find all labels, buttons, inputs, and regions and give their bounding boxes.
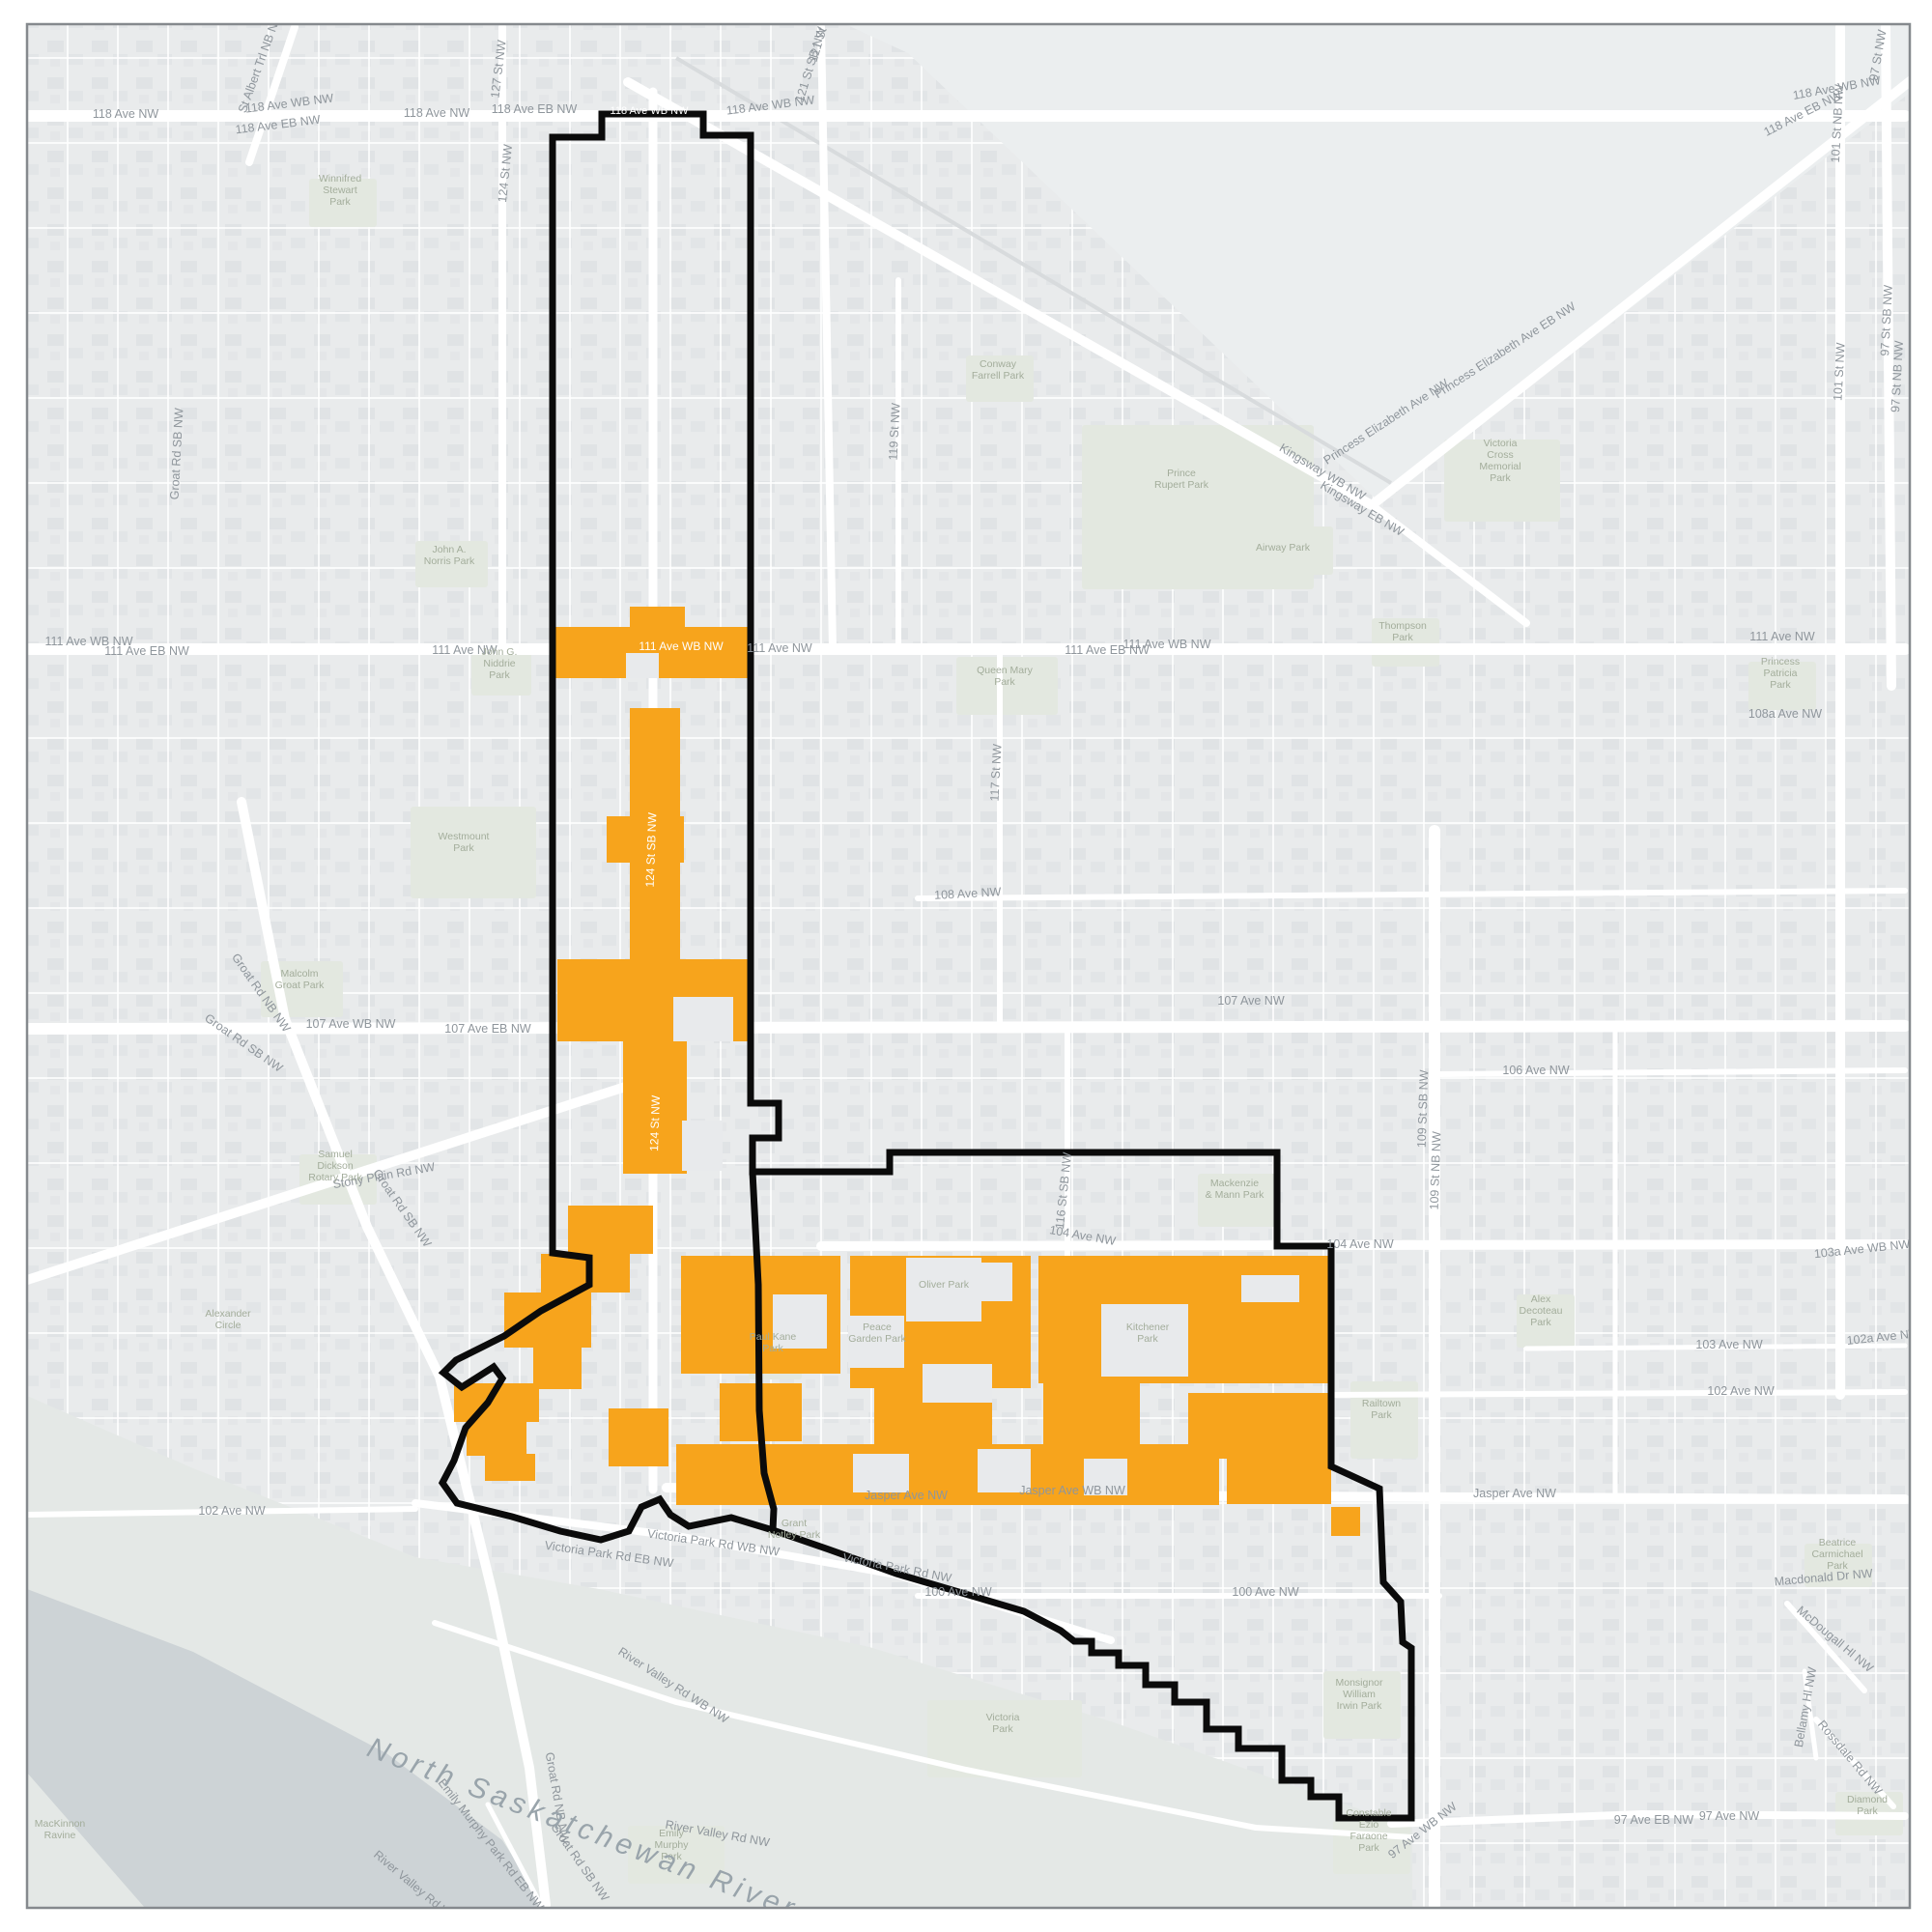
zone-hole (923, 1364, 992, 1403)
park-label: Mackenzie& Mann Park (1206, 1178, 1264, 1201)
road (1333, 1392, 1905, 1395)
road-label: Jasper Ave NW (865, 1489, 948, 1502)
zone-hole (853, 1454, 909, 1492)
road-label: 111 Ave NW (747, 641, 812, 655)
road-label: Jasper Ave NW (1473, 1487, 1556, 1500)
road-label: 111 Ave NW (1749, 630, 1815, 643)
road-label: 97 Ave EB NW (1614, 1813, 1694, 1827)
park-label: MalcolmGroat Park (275, 968, 326, 991)
highlight-zone (504, 1293, 591, 1348)
road-label: 109 St NB NW (1428, 1131, 1444, 1210)
road-label: 108a Ave NW (1748, 707, 1822, 721)
road-label: 104 Ave NW (1326, 1237, 1393, 1251)
road-label: 102 Ave NW (198, 1504, 265, 1518)
road-label: 118 Ave NW (404, 106, 470, 120)
highlight-zone (609, 1408, 668, 1466)
park-label: Oliver Park (919, 1279, 970, 1291)
zone-hole (1241, 1275, 1299, 1302)
road-label: 124 St NW (647, 1094, 663, 1151)
road-label: 124 St SB NW (643, 811, 660, 887)
road-label: 118 Ave WB NW (611, 105, 690, 117)
road-label: 103 Ave NW (1695, 1338, 1762, 1351)
road-label: 109 St SB NW (1415, 1069, 1432, 1148)
road-label: 100 Ave NW (1232, 1585, 1298, 1599)
road-label: 118 Ave NW (93, 107, 159, 121)
highlight-zone (1227, 1444, 1331, 1504)
zone-hole (673, 997, 733, 1041)
zone-hole (626, 653, 659, 678)
highlight-zone (485, 1454, 535, 1481)
road-label: 107 Ave NW (1217, 994, 1284, 1008)
highlight-zone (568, 1206, 653, 1254)
zone-hole (682, 1121, 723, 1171)
road-label: 111 Ave WB NW (639, 639, 724, 653)
zone-hole (966, 1263, 1012, 1301)
highlight-zone (467, 1422, 526, 1456)
road-label: Jasper Ave WB NW (1019, 1484, 1125, 1497)
highlight-zone (630, 708, 680, 826)
road-label: 111 Ave EB NW (104, 644, 189, 658)
road-label: 100 Ave NW (924, 1585, 991, 1599)
highlight-zone (630, 607, 685, 627)
map-page: 118 Ave NW118 Ave WB NW118 Ave EB NW118 … (0, 0, 1932, 1932)
road-label: 111 Ave WB NW (1122, 638, 1210, 651)
road-label: 97 Ave NW (1699, 1809, 1760, 1823)
road-label: 118 Ave EB NW (492, 102, 578, 116)
road-label: 107 Ave EB NW (444, 1022, 531, 1036)
park-label: Airway Park (1256, 542, 1311, 554)
road-label: 106 Ave NW (1502, 1064, 1569, 1077)
road-label: 107 Ave WB NW (306, 1017, 396, 1031)
road-label: 102 Ave NW (1707, 1384, 1774, 1398)
highlight-zone (1331, 1507, 1360, 1536)
highlight-zone (676, 1444, 1219, 1505)
map-canvas[interactable]: 118 Ave NW118 Ave WB NW118 Ave EB NW118 … (0, 0, 1932, 1932)
highlight-zone (533, 1346, 582, 1389)
